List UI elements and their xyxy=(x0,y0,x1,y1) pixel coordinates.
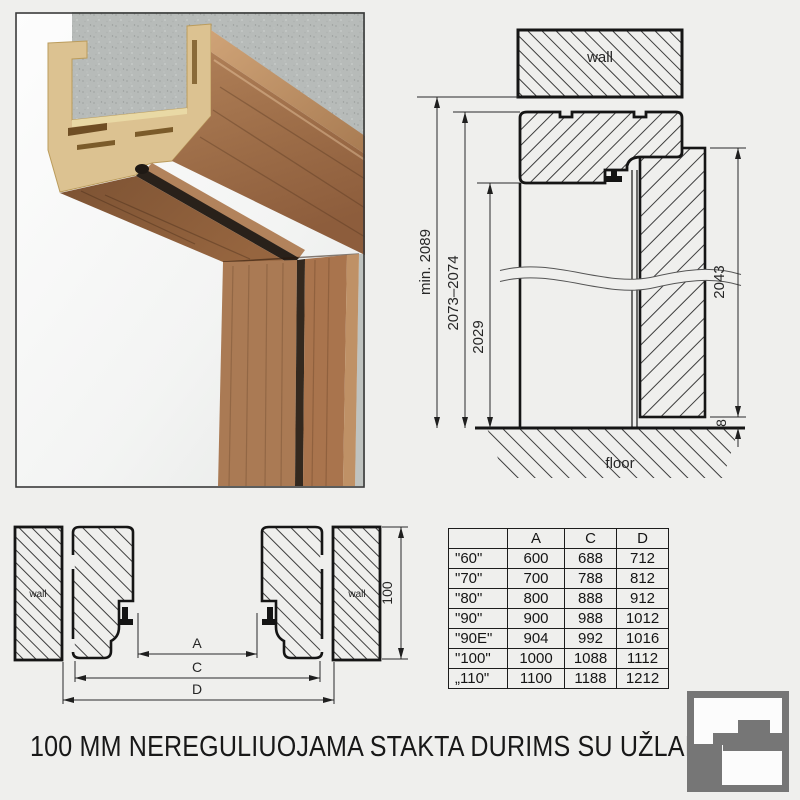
table-row: "90E"9049921016 xyxy=(449,629,669,649)
table-row: "60"600688712 xyxy=(449,549,669,569)
wall-left-label: wall xyxy=(28,589,46,600)
frame-profile-right xyxy=(262,527,324,658)
dim-min-total-height: min. 2089 xyxy=(417,229,434,295)
dim-frame-outer-width: C xyxy=(192,659,202,675)
dim-clear-opening-height: 2029 xyxy=(470,320,487,353)
table-header-row: ACD xyxy=(449,529,669,549)
table-header-cell: C xyxy=(565,529,617,549)
table-cell: "100" xyxy=(449,649,508,669)
table-cell: 992 xyxy=(565,629,617,649)
wall-right-label: wall xyxy=(347,589,365,600)
table-cell: "80" xyxy=(449,589,508,609)
table-cell: 688 xyxy=(565,549,617,569)
table-cell: 1012 xyxy=(617,609,669,629)
concrete-wall xyxy=(72,12,187,120)
table-cell: 712 xyxy=(617,549,669,569)
floor-label: floor xyxy=(605,455,634,472)
seal-gasket-end xyxy=(135,164,149,174)
door-frame-3d-render xyxy=(15,12,365,488)
table-row: "100"100010881112 xyxy=(449,649,669,669)
table-cell: 904 xyxy=(508,629,565,649)
table-cell: 1212 xyxy=(617,669,669,689)
size-table: ACD "60"600688712"70"700788812"80"800888… xyxy=(448,528,669,689)
table-cell: 1000 xyxy=(508,649,565,669)
table-cell: 800 xyxy=(508,589,565,609)
table-cell: 1016 xyxy=(617,629,669,649)
table-cell: 888 xyxy=(565,589,617,609)
table-cell: 1100 xyxy=(508,669,565,689)
table-cell: „110" xyxy=(449,669,508,689)
brand-logo-icon xyxy=(682,688,792,792)
dim-floor-gap: 8 xyxy=(713,419,729,427)
mdf-groove-slot xyxy=(192,40,197,84)
table-row: "90"9009881012 xyxy=(449,609,669,629)
table-cell: "90E" xyxy=(449,629,508,649)
table-cell: 600 xyxy=(508,549,565,569)
logo-block xyxy=(687,744,722,790)
frame-elevation-lines xyxy=(520,170,637,428)
table-cell: "70" xyxy=(449,569,508,589)
table-cell: 1088 xyxy=(565,649,617,669)
page-title: 100 MM NEREGULIUOJAMA STAKTA DURIMS SU U… xyxy=(30,731,727,764)
table-cell: 812 xyxy=(617,569,669,589)
dim-clear-width: A xyxy=(192,635,202,651)
table-cell: 912 xyxy=(617,589,669,609)
table-row: "80"800888912 xyxy=(449,589,669,609)
dim-frame-depth: 100 xyxy=(379,581,395,605)
horizontal-section-drawing: wall wall A C D 100 xyxy=(0,515,420,730)
table-header-cell: A xyxy=(508,529,565,549)
dim-wall-opening-width: D xyxy=(192,681,202,697)
table-row: "70"700788812 xyxy=(449,569,669,589)
table-cell: "90" xyxy=(449,609,508,629)
table-cell: 900 xyxy=(508,609,565,629)
frame-profile-left xyxy=(71,527,133,658)
table-cell: 700 xyxy=(508,569,565,589)
vertical-section-drawing: wall floor min. 2089 xyxy=(415,10,800,502)
table-cell: 1112 xyxy=(617,649,669,669)
table-header-cell xyxy=(449,529,508,549)
wall-label: wall xyxy=(586,49,613,66)
table-cell: 1188 xyxy=(565,669,617,689)
table-cell: 788 xyxy=(565,569,617,589)
dim-frame-outer-height: 2073–2074 xyxy=(445,255,462,330)
dim-door-leaf-height: 2043 xyxy=(711,265,728,298)
table-row: „110"110011881212 xyxy=(449,669,669,689)
table-cell: 988 xyxy=(565,609,617,629)
jamb-front-face xyxy=(303,255,347,486)
table-cell: "60" xyxy=(449,549,508,569)
table-header-cell: D xyxy=(617,529,669,549)
